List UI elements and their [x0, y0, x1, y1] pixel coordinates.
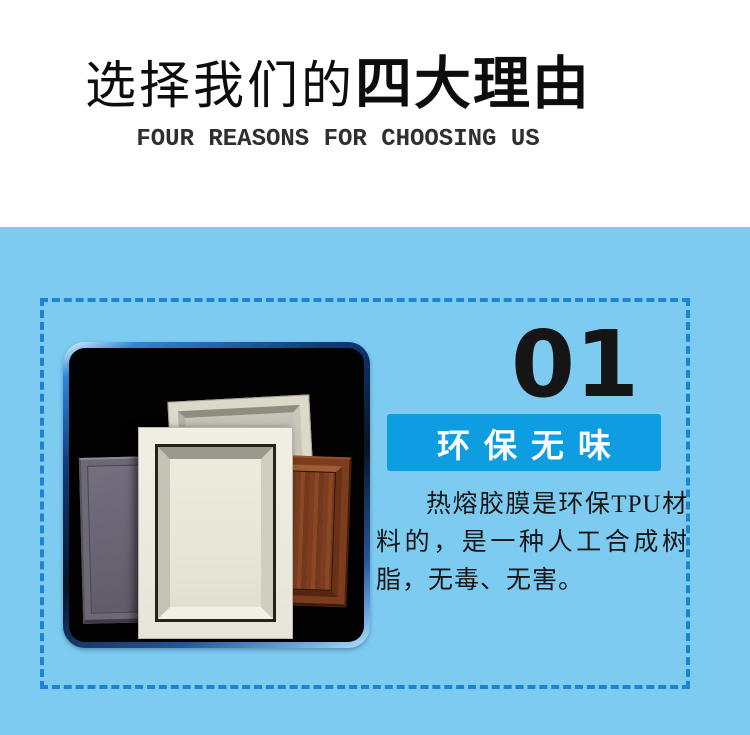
page-title-bold: 四大理由 — [355, 52, 591, 116]
cabinet-door-white — [138, 427, 293, 639]
header-section: 选择我们的四大理由 FOUR REASONS FOR CHOOSING US — [0, 0, 750, 227]
promo-page: 选择我们的四大理由 FOUR REASONS FOR CHOOSING US — [0, 0, 750, 735]
page-subtitle: FOUR REASONS FOR CHOOSING US — [0, 126, 676, 153]
feature-section-reason-1: 01 环保无味 热熔胶膜是环保TPU材料的，是一种人工合成树脂，无毒、无害。 — [0, 227, 750, 735]
reason-description: 热熔胶膜是环保TPU材料的，是一种人工合成树脂，无毒、无害。 — [376, 486, 688, 600]
reason-badge: 环保无味 — [387, 414, 661, 471]
product-photo-cabinet-doors — [69, 348, 364, 642]
product-photo-frame — [63, 342, 370, 648]
page-title-regular: 选择我们的 — [85, 59, 355, 115]
reason-number: 01 — [460, 319, 690, 411]
page-title: 选择我们的四大理由 — [0, 38, 676, 120]
reason-badge-label: 环保无味 — [423, 419, 625, 467]
